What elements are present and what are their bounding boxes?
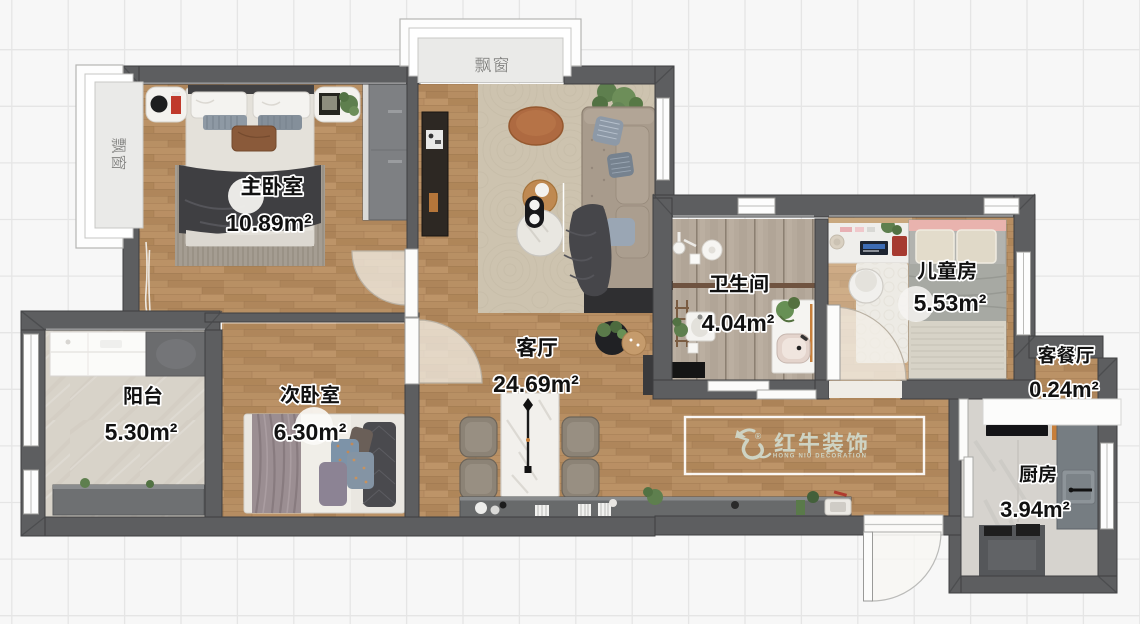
svg-text:24.69m²: 24.69m² (493, 371, 579, 397)
svg-text:5.53m²: 5.53m² (914, 290, 987, 316)
svg-text:HONG NIU DECORATION: HONG NIU DECORATION (773, 454, 867, 460)
svg-text:0.24m²: 0.24m² (1029, 377, 1099, 402)
svg-text:®: ® (755, 431, 762, 441)
svg-text:10.89m²: 10.89m² (226, 210, 312, 236)
svg-text:3.94m²: 3.94m² (1000, 497, 1070, 522)
svg-text:5.30m²: 5.30m² (105, 419, 178, 445)
svg-text:4.04m²: 4.04m² (702, 310, 775, 336)
svg-text:6.30m²: 6.30m² (274, 419, 347, 445)
